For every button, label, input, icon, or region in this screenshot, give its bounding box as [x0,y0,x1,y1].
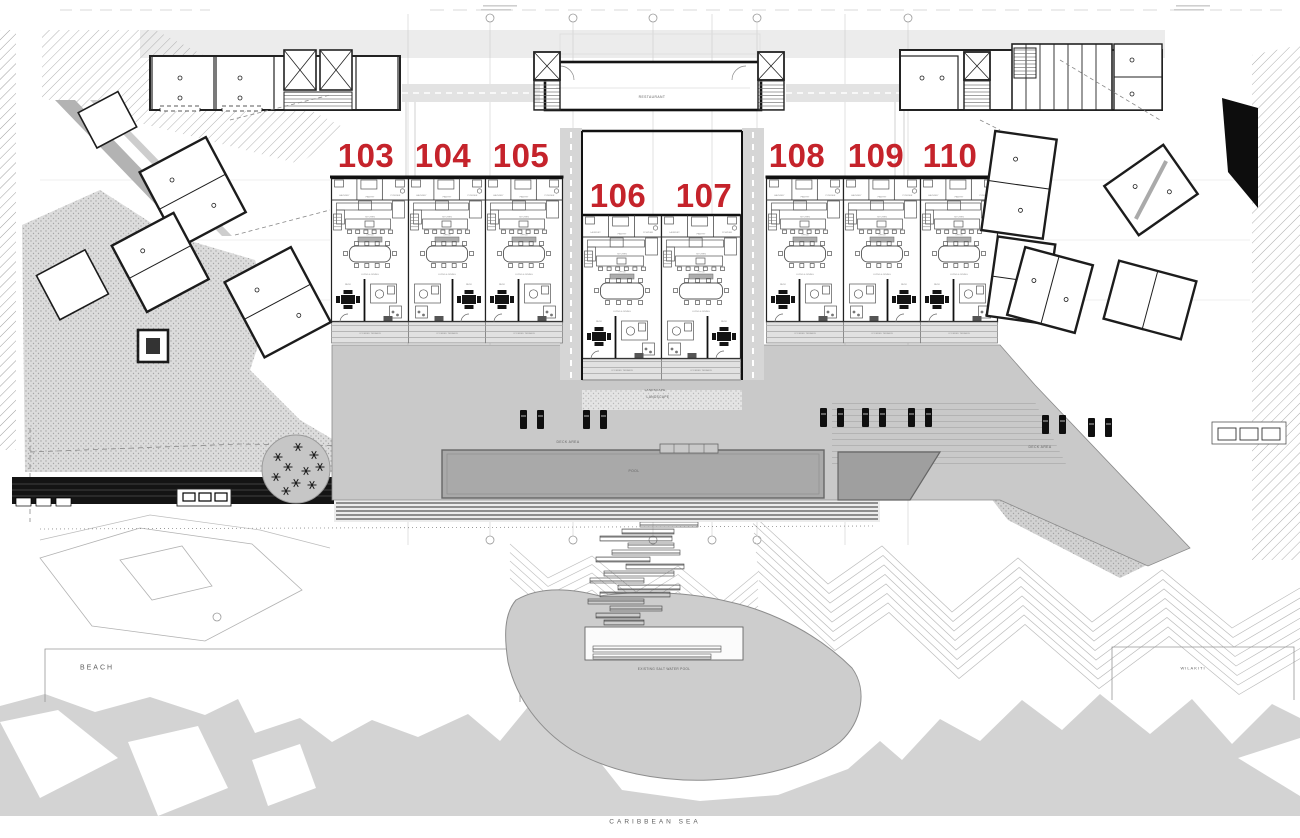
svg-text:LAUNDRY: LAUNDRY [669,231,680,234]
svg-text:COVERED TERRACE: COVERED TERRACE [436,332,458,335]
site-label-restaurant: RESTAURANT [639,95,666,99]
svg-text:COVERED TERRACE: COVERED TERRACE [948,332,970,335]
svg-text:KITCHEN: KITCHEN [519,217,529,219]
unit-number-108[interactable]: 108 [769,139,826,172]
svg-text:KITCHEN: KITCHEN [800,217,810,219]
palm-tree-cluster [262,435,330,503]
svg-text:OFFICE: OFFICE [366,235,374,237]
svg-text:PANTRY: PANTRY [955,196,964,199]
svg-text:PATIO: PATIO [596,320,603,323]
svg-text:PATIO: PATIO [901,283,908,286]
svg-text:POWDER: POWDER [544,195,554,197]
svg-text:LIVING & DINING: LIVING & DINING [438,274,456,276]
site-label-pool: POOL [628,469,639,473]
svg-text:KITCHEN: KITCHEN [696,254,706,256]
svg-text:POWDER: POWDER [902,195,912,197]
svg-text:PATIO: PATIO [499,283,506,286]
svg-text:LIVING & DINING: LIVING & DINING [361,274,379,276]
unit-number-107[interactable]: 107 [676,179,733,212]
svg-text:OFFICE: OFFICE [697,272,705,274]
dock-platform [585,627,743,660]
site-label-deck-area: DECK AREA [1028,445,1051,449]
svg-text:PANTRY: PANTRY [366,196,375,199]
svg-text:KITCHEN: KITCHEN [442,217,452,219]
right-slope-hatch [1222,45,1300,560]
svg-text:PANTRY: PANTRY [618,233,627,236]
svg-text:LAUNDRY: LAUNDRY [590,231,601,234]
svg-text:PANTRY: PANTRY [697,233,706,236]
svg-text:LAUNDRY: LAUNDRY [774,194,785,197]
svg-text:LAUNDRY: LAUNDRY [928,194,939,197]
svg-text:COVERED TERRACE: COVERED TERRACE [513,332,535,335]
svg-text:OFFICE: OFFICE [520,235,528,237]
svg-text:LIVING & DINING: LIVING & DINING [515,274,533,276]
boardwalk-center [334,500,880,522]
svg-text:OFFICE: OFFICE [443,235,451,237]
svg-text:OFFICE: OFFICE [878,235,886,237]
svg-text:PANTRY: PANTRY [520,196,529,199]
site-label-existing-salt-water-pool: EXISTING SALT WATER POOL [638,667,690,671]
site-label-landscape: LANDSCAPE [645,388,666,392]
svg-text:OFFICE: OFFICE [618,272,626,274]
svg-text:OFFICE: OFFICE [801,235,809,237]
svg-text:COVERED TERRACE: COVERED TERRACE [794,332,816,335]
svg-text:LIVING & DINING: LIVING & DINING [796,274,814,276]
unit-number-105[interactable]: 105 [493,139,550,172]
svg-text:POWDER: POWDER [390,195,400,197]
floor-plan-canvas: LAUNDRYPANTRYPOWDERKITCHENOFFICELIVING &… [0,0,1300,838]
unit-number-109[interactable]: 109 [848,139,905,172]
svg-text:LIVING & DINING: LIVING & DINING [873,274,891,276]
svg-text:POWDER: POWDER [643,232,653,234]
svg-text:LAUNDRY: LAUNDRY [493,194,504,197]
svg-text:POWDER: POWDER [825,195,835,197]
svg-text:PANTRY: PANTRY [878,196,887,199]
svg-text:PATIO: PATIO [466,283,473,286]
site-label-beach: BEACH [80,665,114,672]
svg-text:LIVING & DINING: LIVING & DINING [692,311,710,313]
unit-number-110[interactable]: 110 [923,139,978,172]
unit-number-106[interactable]: 106 [590,179,647,212]
unit-number-103[interactable]: 103 [338,139,395,172]
svg-text:POWDER: POWDER [722,232,732,234]
site-label-caribbean-sea: CARIBBEAN SEA [609,819,700,826]
pool-deck [332,345,1286,566]
svg-text:COVERED TERRACE: COVERED TERRACE [611,369,633,372]
unit-number-104[interactable]: 104 [415,139,472,172]
svg-text:KITCHEN: KITCHEN [617,254,627,256]
site-label-landscape: LANDSCAPE [647,395,670,399]
site-label-wilakiti: WILAKITI [1180,666,1205,671]
svg-text:PATIO: PATIO [721,320,728,323]
svg-text:LAUNDRY: LAUNDRY [339,194,350,197]
svg-text:COVERED TERRACE: COVERED TERRACE [359,332,381,335]
svg-text:COVERED TERRACE: COVERED TERRACE [690,369,712,372]
svg-text:LIVING & DINING: LIVING & DINING [613,311,631,313]
svg-text:KITCHEN: KITCHEN [877,217,887,219]
svg-text:POWDER: POWDER [467,195,477,197]
svg-text:PATIO: PATIO [934,283,941,286]
svg-text:PATIO: PATIO [345,283,352,286]
svg-text:PATIO: PATIO [780,283,787,286]
svg-text:KITCHEN: KITCHEN [365,217,375,219]
site-plan-drawing: LAUNDRYPANTRYPOWDERKITCHENOFFICELIVING &… [0,0,1300,838]
svg-text:LAUNDRY: LAUNDRY [416,194,427,197]
svg-text:KITCHEN: KITCHEN [954,217,964,219]
svg-text:LIVING & DINING: LIVING & DINING [950,274,968,276]
svg-text:PANTRY: PANTRY [801,196,810,199]
site-label-deck-area: DECK AREA [556,440,579,444]
svg-text:OFFICE: OFFICE [955,235,963,237]
svg-text:PANTRY: PANTRY [443,196,452,199]
svg-text:COVERED TERRACE: COVERED TERRACE [871,332,893,335]
svg-text:LAUNDRY: LAUNDRY [851,194,862,197]
